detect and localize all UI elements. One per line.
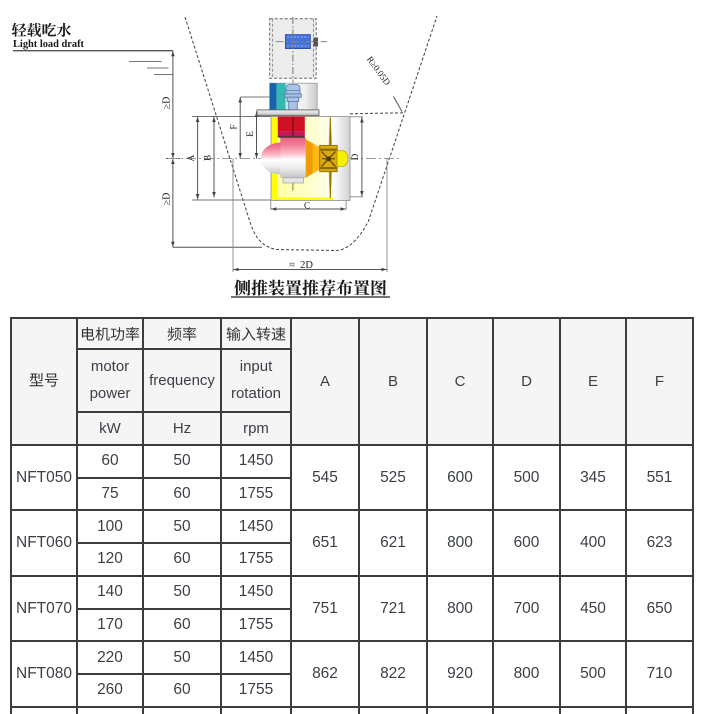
svg-text:F: F [230, 124, 240, 129]
svg-text:E: E [246, 131, 256, 137]
svg-text:B: B [204, 155, 214, 161]
svg-text:≈ 2D: ≈ 2D [289, 260, 313, 271]
svg-text:Light load draft: Light load draft [13, 39, 85, 50]
svg-text:≥D: ≥D [162, 97, 173, 110]
svg-text:D: D [351, 153, 361, 160]
svg-text:R≥0.05D: R≥0.05D [365, 54, 393, 87]
svg-text:A: A [187, 154, 197, 161]
svg-text:C: C [304, 201, 310, 211]
svg-text:≥D: ≥D [162, 193, 173, 206]
